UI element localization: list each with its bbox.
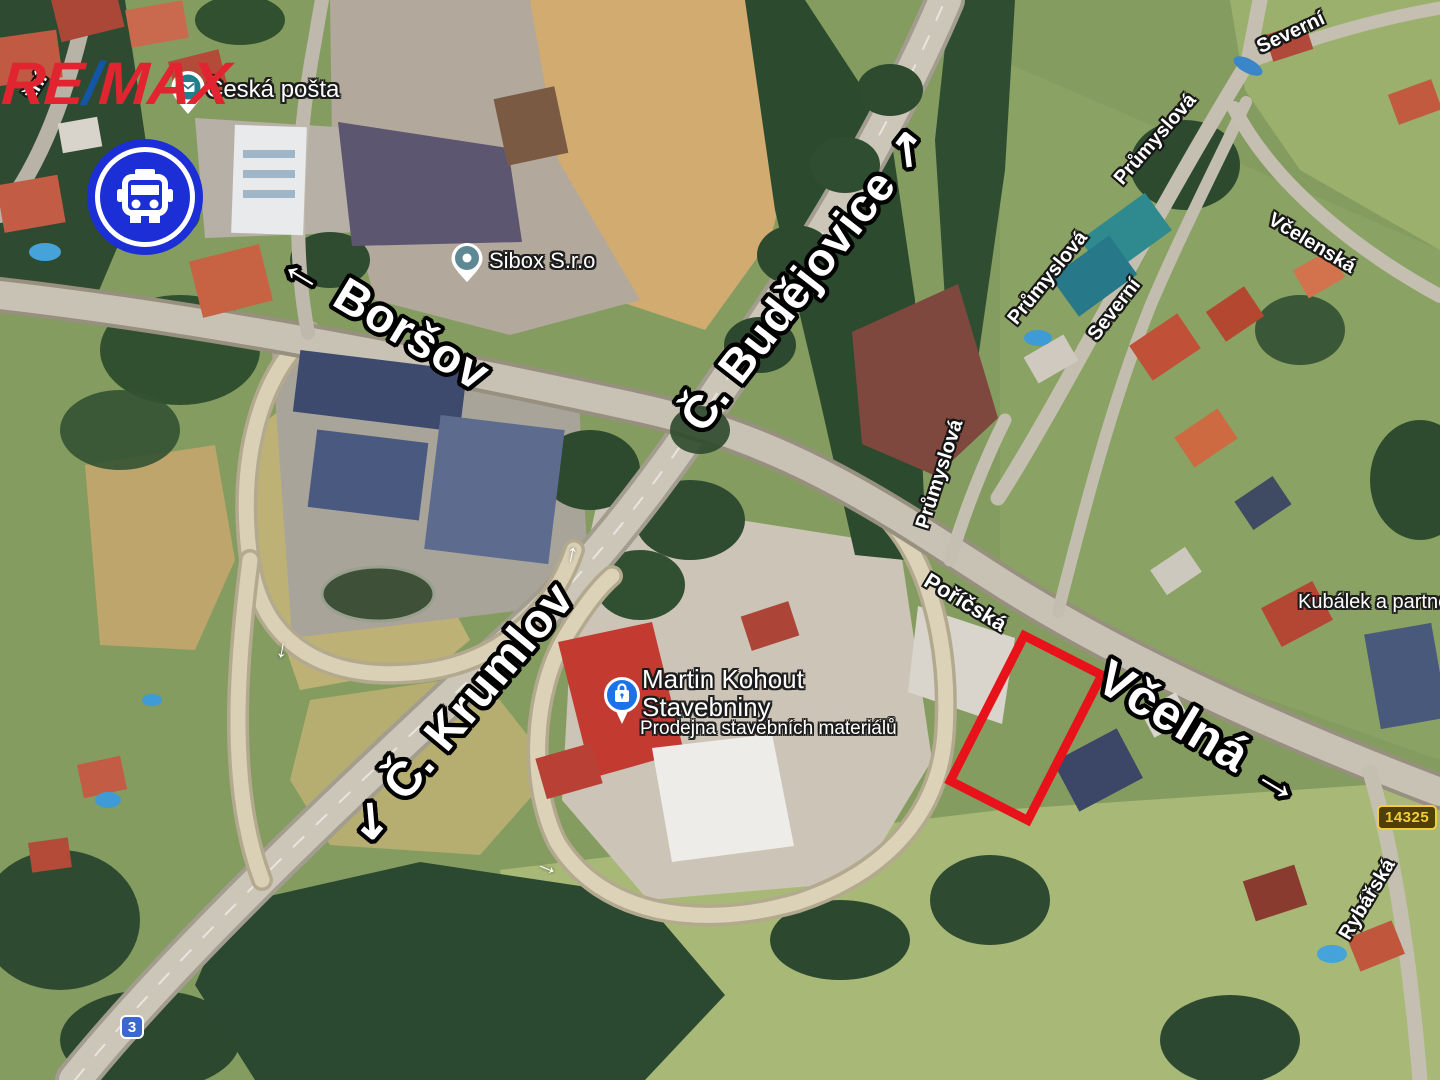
sibox-label[interactable]: Sibox S.r.o: [489, 250, 595, 272]
martin-kohout-label-line1[interactable]: Martin Kohout: [642, 666, 804, 692]
dot-pin-icon: [450, 242, 484, 284]
martin-kohout-pin[interactable]: [602, 676, 642, 731]
bus-stop-icon: [87, 139, 203, 255]
martin-kohout-label-line2[interactable]: Stavebniny: [642, 694, 771, 720]
kubalek-label[interactable]: Kubálek a partne: [1298, 592, 1440, 612]
satellite-basemap: [0, 0, 1440, 1080]
route-badge-14325: 14325: [1377, 805, 1437, 830]
sibox-pin[interactable]: [450, 242, 484, 289]
remax-max: MAX: [97, 50, 232, 117]
bus-glyph-icon: [113, 163, 177, 227]
martin-kohout-sublabel: Prodejna stavebních materiálů: [640, 719, 897, 738]
route-badge-3: 3: [120, 1015, 144, 1039]
remax-re: RE: [0, 50, 86, 117]
satellite-map[interactable]: žní Průmyslová Průmyslová Průmyslová Sev…: [0, 0, 1440, 1080]
shopping-bag-icon: [602, 676, 642, 726]
remax-logo: RE/MAX: [0, 54, 231, 114]
